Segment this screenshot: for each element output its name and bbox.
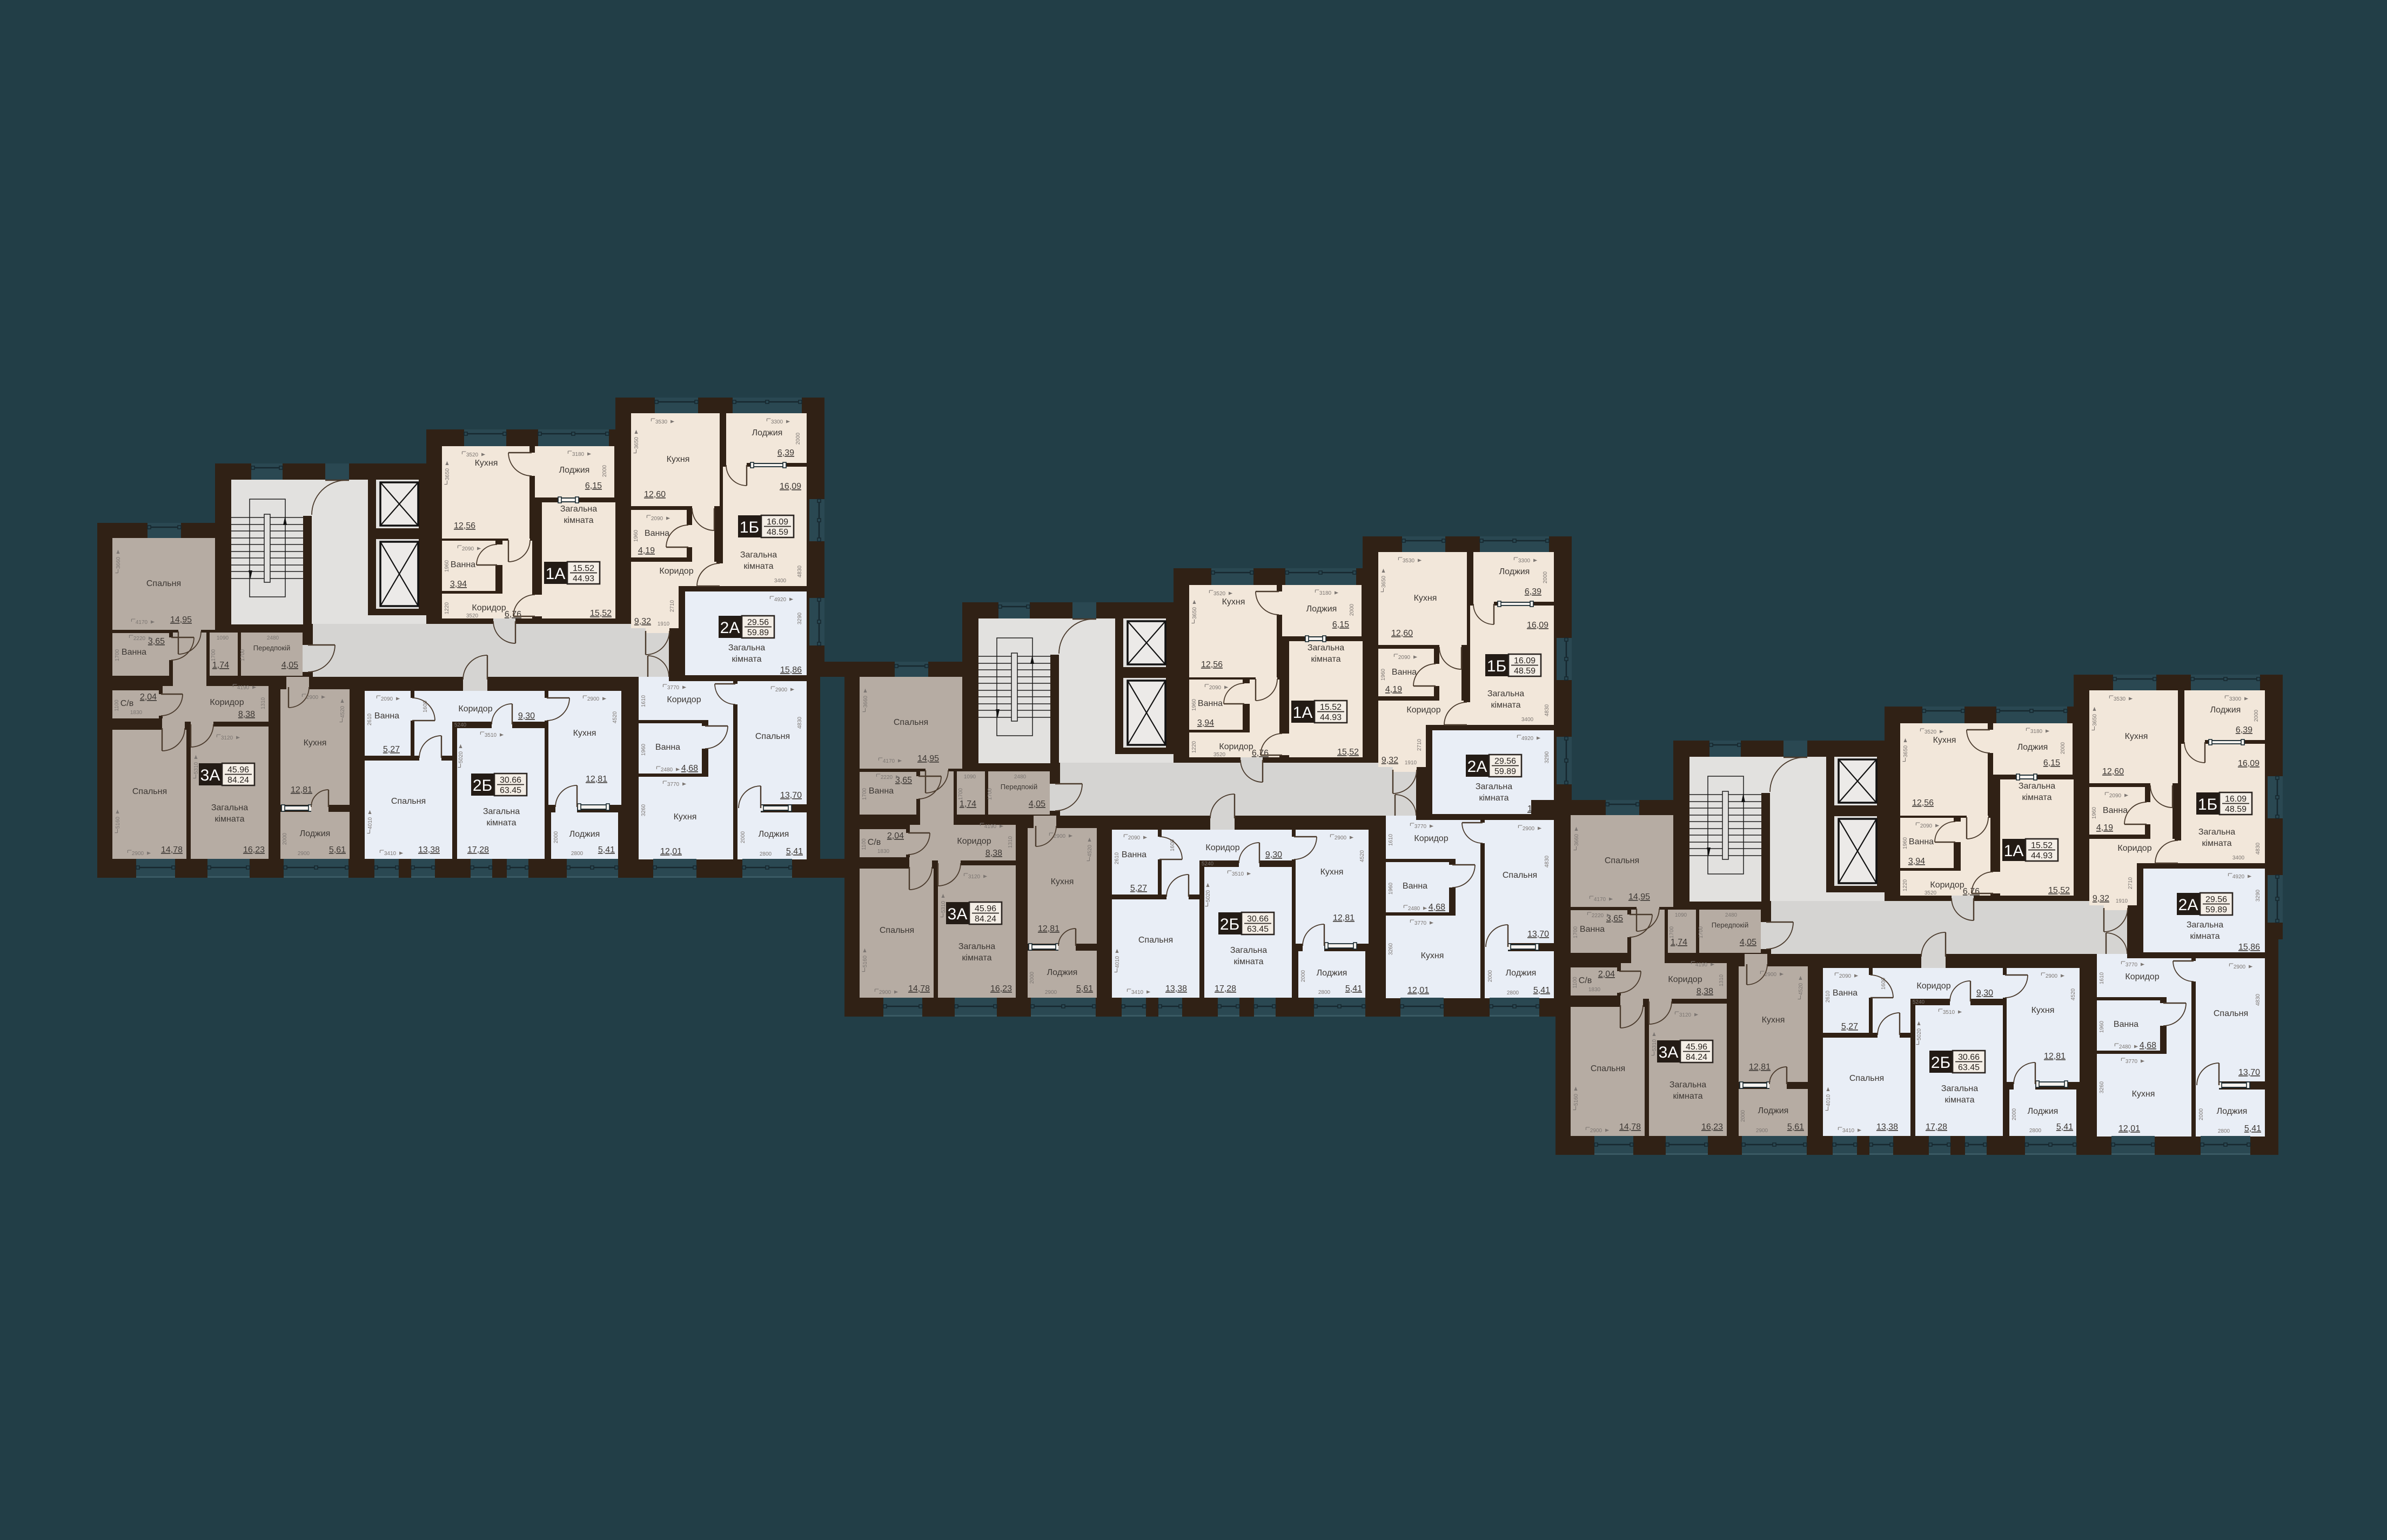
svg-text:Ванна: Ванна (2114, 1020, 2138, 1029)
svg-text:3А: 3А (948, 905, 968, 923)
svg-text:кімната: кімната (487, 818, 517, 828)
svg-text:2900: 2900 (1054, 833, 1066, 839)
svg-text:Кухня: Кухня (674, 812, 697, 822)
svg-text:1960: 1960 (633, 529, 639, 542)
svg-text:3,94: 3,94 (1908, 857, 1925, 866)
svg-text:С/в: С/в (1579, 976, 1592, 985)
svg-text:3180: 3180 (572, 452, 585, 458)
svg-text:3520: 3520 (466, 613, 479, 619)
svg-text:4830: 4830 (797, 716, 803, 729)
svg-text:Ванна: Ванна (1392, 668, 1417, 677)
svg-text:Лоджия: Лоджия (2210, 705, 2241, 715)
svg-text:14,95: 14,95 (1628, 892, 1650, 902)
svg-text:16.09: 16.09 (2225, 795, 2247, 804)
svg-text:1700: 1700 (987, 788, 993, 800)
svg-text:Ванна: Ванна (655, 743, 680, 752)
svg-text:3530: 3530 (655, 419, 668, 425)
svg-text:1830: 1830 (877, 849, 890, 855)
svg-text:2610: 2610 (1825, 990, 1831, 1003)
svg-text:Коридор: Коридор (1406, 705, 1440, 715)
svg-text:Спальня: Спальня (1138, 936, 1173, 945)
svg-text:Спальня: Спальня (132, 787, 167, 796)
svg-text:1310: 1310 (260, 697, 266, 709)
svg-text:3520: 3520 (1213, 591, 1226, 597)
svg-text:Загальна: Загальна (2187, 920, 2223, 930)
svg-text:3180: 3180 (1319, 590, 1332, 596)
svg-text:12,81: 12,81 (1038, 924, 1060, 933)
svg-text:4830: 4830 (1544, 855, 1550, 867)
svg-text:2800: 2800 (1507, 990, 1519, 996)
svg-text:4010: 4010 (1826, 1094, 1832, 1106)
svg-text:Спальня: Спальня (1849, 1074, 1884, 1083)
svg-text:Кухня: Кухня (1421, 951, 1444, 960)
svg-text:16,09: 16,09 (780, 482, 801, 491)
svg-text:2,04: 2,04 (887, 831, 904, 840)
svg-text:29.56: 29.56 (1494, 757, 1516, 766)
svg-text:48.59: 48.59 (767, 528, 788, 537)
svg-text:4170: 4170 (1594, 897, 1606, 903)
svg-text:4,05: 4,05 (1740, 938, 1756, 947)
svg-text:13,70: 13,70 (1527, 930, 1549, 939)
svg-text:3770: 3770 (1414, 920, 1427, 926)
svg-text:кімната: кімната (1234, 957, 1264, 966)
svg-text:6,15: 6,15 (2043, 758, 2060, 768)
svg-text:16,09: 16,09 (1527, 621, 1548, 630)
svg-text:Кухня: Кухня (1222, 597, 1245, 607)
svg-text:84.24: 84.24 (975, 914, 996, 924)
svg-text:1700: 1700 (240, 649, 246, 661)
svg-text:1А: 1А (2004, 842, 2024, 860)
svg-text:1610: 1610 (641, 695, 647, 707)
svg-text:4,05: 4,05 (1029, 799, 1045, 809)
svg-text:1700: 1700 (862, 788, 868, 800)
svg-text:Лоджия: Лоджия (569, 830, 600, 839)
svg-text:Ванна: Ванна (1580, 925, 1605, 934)
svg-text:3А: 3А (1659, 1044, 1679, 1061)
svg-text:2900: 2900 (1590, 1128, 1602, 1134)
svg-text:4,68: 4,68 (2140, 1041, 2156, 1050)
svg-text:2Б: 2Б (473, 777, 492, 795)
svg-text:Кухня: Кухня (1051, 877, 1074, 886)
svg-text:кімната: кімната (2202, 839, 2232, 848)
svg-text:2,04: 2,04 (140, 692, 157, 702)
svg-text:15.52: 15.52 (2031, 841, 2053, 850)
svg-text:3120: 3120 (1679, 1012, 1692, 1018)
svg-text:2900: 2900 (1045, 990, 1057, 996)
svg-text:4920: 4920 (774, 597, 787, 603)
svg-text:2090: 2090 (1398, 655, 1411, 661)
svg-text:2900: 2900 (298, 851, 310, 857)
svg-text:2900: 2900 (1523, 826, 1535, 832)
svg-text:3650: 3650 (1381, 575, 1387, 588)
svg-text:Коридор: Коридор (1930, 880, 1964, 890)
svg-text:кімната: кімната (215, 815, 245, 824)
svg-text:1610: 1610 (2099, 972, 2105, 984)
svg-text:12,01: 12,01 (1407, 986, 1429, 995)
svg-text:2480: 2480 (1408, 906, 1420, 912)
svg-text:14,95: 14,95 (917, 754, 939, 763)
svg-text:Коридор: Коридор (472, 603, 506, 613)
svg-text:2000: 2000 (2060, 742, 2066, 754)
svg-text:2220: 2220 (881, 775, 893, 781)
svg-text:Кухня: Кухня (1762, 1016, 1785, 1025)
svg-text:12,81: 12,81 (2044, 1052, 2066, 1061)
svg-text:2480: 2480 (2119, 1044, 2131, 1050)
svg-text:3260: 3260 (641, 804, 647, 816)
svg-text:Загальна: Загальна (483, 807, 520, 816)
svg-text:кімната: кімната (962, 953, 992, 963)
svg-text:1610: 1610 (1388, 833, 1394, 846)
svg-text:84.24: 84.24 (227, 776, 249, 785)
svg-text:9,32: 9,32 (1382, 756, 1398, 765)
svg-text:5240: 5240 (1202, 861, 1214, 867)
svg-text:5020: 5020 (1205, 890, 1211, 902)
svg-text:Ванна: Ванна (1833, 988, 1858, 998)
svg-text:5,41: 5,41 (2244, 1124, 2261, 1133)
svg-text:84.24: 84.24 (1686, 1053, 1707, 1062)
svg-text:48.59: 48.59 (1514, 667, 1536, 676)
svg-text:2000: 2000 (1487, 970, 1493, 982)
svg-text:Спальня: Спальня (894, 718, 928, 727)
svg-text:2000: 2000 (795, 432, 801, 445)
svg-text:14,78: 14,78 (1619, 1122, 1641, 1132)
svg-text:Лоджия: Лоджия (1506, 969, 1537, 978)
svg-text:2А: 2А (2178, 896, 2198, 914)
svg-text:1100: 1100 (114, 700, 120, 711)
svg-text:2000: 2000 (1543, 571, 1548, 583)
svg-text:3290: 3290 (1544, 751, 1550, 763)
svg-text:2000: 2000 (2254, 709, 2259, 722)
svg-text:2480: 2480 (1725, 912, 1738, 918)
svg-text:3650: 3650 (1903, 745, 1909, 757)
svg-text:Коридор: Коридор (957, 837, 991, 846)
svg-text:2Б: 2Б (1220, 916, 1239, 933)
svg-text:2900: 2900 (2046, 973, 2058, 979)
svg-text:Лоджия: Лоджия (2028, 1107, 2059, 1116)
svg-text:59.89: 59.89 (1494, 767, 1516, 776)
svg-text:5020: 5020 (458, 751, 464, 763)
svg-text:2А: 2А (720, 619, 740, 637)
svg-text:Кухня: Кухня (475, 459, 498, 468)
svg-text:Кухня: Кухня (667, 455, 690, 464)
svg-text:45.96: 45.96 (1686, 1043, 1707, 1052)
svg-text:1Б: 1Б (1487, 657, 1506, 675)
svg-text:3520: 3520 (1925, 890, 1937, 896)
svg-text:Загальна: Загальна (2019, 782, 2055, 791)
svg-text:Лоджия: Лоджия (759, 830, 789, 839)
svg-text:2,04: 2,04 (1598, 970, 1615, 979)
svg-text:2900: 2900 (879, 990, 891, 996)
svg-text:16,23: 16,23 (990, 984, 1012, 993)
svg-text:Загальна: Загальна (1308, 643, 1344, 653)
svg-text:Кухня: Кухня (304, 738, 327, 748)
svg-text:5310: 5310 (193, 762, 199, 774)
svg-text:44.93: 44.93 (1320, 713, 1342, 722)
svg-text:5,61: 5,61 (329, 845, 346, 855)
svg-text:4,19: 4,19 (1385, 685, 1402, 694)
svg-text:2090: 2090 (2109, 793, 2122, 799)
svg-text:3410: 3410 (1842, 1128, 1855, 1134)
svg-text:4830: 4830 (2255, 993, 2261, 1006)
svg-text:13,38: 13,38 (1165, 984, 1187, 993)
svg-text:13,38: 13,38 (1876, 1122, 1898, 1132)
svg-text:59.89: 59.89 (747, 628, 769, 637)
svg-text:3120: 3120 (968, 874, 981, 880)
svg-text:3770: 3770 (667, 685, 680, 691)
svg-text:3290: 3290 (2255, 889, 2261, 902)
svg-text:4190: 4190 (1695, 962, 1708, 968)
svg-text:Ванна: Ванна (1909, 837, 1934, 846)
svg-text:Загальна: Загальна (1487, 689, 1524, 698)
svg-text:кімната: кімната (1491, 701, 1521, 710)
svg-text:2800: 2800 (2029, 1128, 2042, 1134)
svg-text:1090: 1090 (1675, 912, 1687, 918)
svg-text:2900: 2900 (132, 851, 144, 857)
svg-text:6,15: 6,15 (1332, 620, 1349, 629)
svg-text:Коридор: Коридор (1219, 742, 1253, 751)
svg-text:Спальня: Спальня (146, 579, 181, 588)
svg-text:кімната: кімната (1479, 793, 1509, 803)
svg-text:2480: 2480 (661, 767, 673, 773)
svg-text:Лоджия: Лоджия (1758, 1106, 1789, 1115)
svg-text:Спальня: Спальня (1591, 1064, 1625, 1073)
svg-text:2900: 2900 (1335, 835, 1347, 841)
svg-text:3520: 3520 (1925, 729, 1937, 735)
svg-text:13,70: 13,70 (2238, 1068, 2260, 1077)
svg-text:2090: 2090 (1128, 835, 1141, 841)
svg-text:12,56: 12,56 (454, 521, 475, 530)
svg-text:3660: 3660 (863, 695, 869, 708)
svg-text:3650: 3650 (445, 468, 451, 480)
svg-text:1220: 1220 (444, 602, 450, 614)
svg-text:12,81: 12,81 (1749, 1062, 1771, 1072)
svg-text:1910: 1910 (658, 621, 670, 627)
svg-text:12,60: 12,60 (2102, 767, 2124, 776)
svg-text:1310: 1310 (1719, 974, 1725, 986)
svg-text:5,41: 5,41 (2056, 1122, 2073, 1132)
svg-text:1960: 1960 (1902, 837, 1908, 849)
svg-text:2000: 2000 (1740, 1109, 1746, 1122)
svg-text:8,38: 8,38 (985, 849, 1002, 858)
svg-text:3300: 3300 (2229, 696, 2242, 702)
svg-text:Лоджия: Лоджия (1047, 968, 1078, 977)
svg-text:4,19: 4,19 (638, 546, 655, 555)
svg-text:30.66: 30.66 (1958, 1053, 1980, 1062)
svg-text:15,52: 15,52 (2048, 886, 2070, 895)
svg-text:С/в: С/в (868, 838, 881, 847)
svg-text:45.96: 45.96 (975, 904, 996, 913)
svg-text:1220: 1220 (1191, 741, 1197, 753)
svg-text:9,32: 9,32 (2093, 894, 2109, 903)
svg-text:Коридор: Коридор (210, 698, 244, 707)
svg-text:16.09: 16.09 (1514, 656, 1536, 665)
svg-text:5310: 5310 (941, 900, 947, 913)
svg-text:Загальна: Загальна (1941, 1084, 1978, 1093)
svg-text:3510: 3510 (1943, 1010, 1955, 1016)
svg-text:2710: 2710 (669, 600, 675, 612)
svg-text:15,86: 15,86 (2238, 943, 2260, 952)
svg-text:кімната: кімната (744, 562, 774, 571)
svg-text:5,27: 5,27 (1841, 1022, 1858, 1031)
svg-text:2000: 2000 (1349, 603, 1355, 616)
svg-text:8,38: 8,38 (238, 710, 255, 719)
svg-text:Ванна: Ванна (869, 786, 894, 796)
svg-text:1910: 1910 (1405, 760, 1417, 766)
svg-text:17,28: 17,28 (1215, 984, 1236, 993)
svg-text:Загальна: Загальна (1669, 1080, 1706, 1090)
svg-text:9,30: 9,30 (518, 711, 535, 721)
svg-text:кімната: кімната (2190, 932, 2220, 941)
svg-text:14,95: 14,95 (170, 615, 192, 624)
svg-text:4010: 4010 (367, 817, 373, 829)
svg-text:2090: 2090 (381, 696, 393, 702)
svg-text:Лоджия: Лоджия (1499, 567, 1530, 576)
svg-text:Кухня: Кухня (1933, 736, 1956, 745)
svg-text:Спальня: Спальня (1503, 871, 1537, 880)
svg-text:2000: 2000 (2011, 1108, 2017, 1120)
svg-text:Ванна: Ванна (451, 560, 475, 569)
svg-text:2800: 2800 (2218, 1128, 2230, 1134)
svg-text:4,19: 4,19 (2096, 823, 2113, 832)
svg-text:4520: 4520 (612, 711, 618, 723)
svg-text:Загальна: Загальна (1476, 782, 1512, 791)
svg-text:Коридор: Коридор (1205, 843, 1239, 852)
svg-text:Лоджия: Лоджия (300, 829, 331, 838)
svg-text:9,30: 9,30 (1265, 850, 1282, 859)
svg-text:1А: 1А (1293, 704, 1313, 722)
svg-text:5,27: 5,27 (383, 745, 400, 754)
svg-text:Ванна: Ванна (1122, 850, 1146, 859)
svg-text:2610: 2610 (367, 713, 373, 725)
svg-text:С/в: С/в (120, 699, 134, 708)
svg-text:1,74: 1,74 (960, 799, 976, 809)
svg-text:Спальня: Спальня (2214, 1009, 2248, 1018)
svg-text:29.56: 29.56 (747, 618, 769, 627)
svg-text:3290: 3290 (797, 612, 803, 624)
svg-text:Коридор: Коридор (2117, 844, 2151, 853)
svg-text:Ванна: Ванна (1403, 882, 1427, 891)
svg-text:15,52: 15,52 (1337, 748, 1359, 757)
svg-text:Спальня: Спальня (1605, 856, 1639, 865)
svg-text:5310: 5310 (1652, 1039, 1658, 1051)
svg-text:3510: 3510 (1232, 871, 1244, 877)
svg-text:Загальна: Загальна (740, 550, 777, 560)
svg-text:13,70: 13,70 (780, 791, 802, 800)
svg-text:Ванна: Ванна (374, 711, 399, 721)
svg-text:4190: 4190 (237, 685, 250, 691)
svg-text:1830: 1830 (130, 710, 143, 716)
svg-text:4920: 4920 (2232, 874, 2245, 880)
svg-text:5160: 5160 (115, 816, 121, 829)
svg-text:4520: 4520 (340, 705, 346, 718)
svg-text:8,38: 8,38 (1697, 987, 1713, 996)
svg-text:5,41: 5,41 (1533, 986, 1550, 995)
svg-text:Коридор: Коридор (1916, 981, 1950, 991)
svg-text:3530: 3530 (1403, 558, 1415, 564)
svg-text:1Б: 1Б (740, 519, 759, 536)
svg-text:Загальна: Загальна (1230, 946, 1267, 955)
svg-text:5240: 5240 (454, 722, 467, 728)
svg-text:1960: 1960 (641, 743, 647, 756)
svg-text:5,41: 5,41 (598, 845, 615, 855)
svg-text:29.56: 29.56 (2205, 895, 2227, 904)
svg-text:4830: 4830 (2255, 842, 2261, 855)
svg-text:3260: 3260 (1388, 943, 1394, 955)
svg-text:5,41: 5,41 (786, 847, 803, 856)
svg-text:Спальня: Спальня (880, 926, 914, 935)
svg-text:Загальна: Загальна (2198, 828, 2235, 837)
svg-text:2220: 2220 (1592, 913, 1604, 919)
svg-text:2000: 2000 (282, 832, 288, 845)
svg-text:Коридор: Коридор (659, 567, 693, 576)
svg-text:4830: 4830 (1544, 704, 1550, 716)
svg-text:1960: 1960 (2091, 806, 2097, 819)
svg-text:1700: 1700 (211, 649, 217, 661)
svg-text:2Б: 2Б (1931, 1054, 1950, 1072)
svg-text:Кухня: Кухня (1414, 594, 1437, 603)
svg-text:1220: 1220 (1902, 879, 1908, 891)
svg-text:4520: 4520 (2070, 988, 2076, 1000)
svg-text:45.96: 45.96 (227, 765, 249, 775)
svg-text:Передпокій: Передпокій (1001, 783, 1037, 791)
svg-text:44.93: 44.93 (573, 574, 594, 583)
svg-text:Загальна: Загальна (728, 643, 765, 653)
svg-text:17,28: 17,28 (467, 845, 489, 855)
svg-text:2000: 2000 (553, 831, 559, 843)
svg-text:15,52: 15,52 (590, 609, 612, 618)
svg-text:12,81: 12,81 (586, 775, 607, 784)
svg-text:12,60: 12,60 (1391, 629, 1413, 638)
svg-text:30.66: 30.66 (1247, 914, 1269, 924)
svg-text:3660: 3660 (116, 556, 122, 569)
svg-text:2000: 2000 (2198, 1108, 2204, 1120)
svg-text:Кухня: Кухня (1320, 867, 1344, 877)
svg-text:Лоджия: Лоджия (2217, 1107, 2248, 1116)
svg-text:2900: 2900 (587, 696, 600, 702)
svg-text:2610: 2610 (1114, 852, 1120, 864)
svg-text:4,05: 4,05 (281, 661, 298, 670)
svg-text:1А: 1А (546, 565, 566, 583)
svg-text:3180: 3180 (2030, 729, 2043, 735)
svg-text:Кухня: Кухня (573, 729, 596, 738)
svg-text:4,68: 4,68 (681, 764, 698, 773)
svg-text:12,56: 12,56 (1912, 798, 1934, 808)
svg-text:Коридор: Коридор (458, 704, 492, 714)
svg-text:4830: 4830 (797, 565, 803, 577)
svg-text:кімната: кімната (2022, 793, 2052, 802)
svg-text:12,01: 12,01 (2118, 1124, 2140, 1133)
svg-text:2090: 2090 (1209, 685, 1222, 691)
svg-text:2480: 2480 (267, 635, 279, 641)
svg-text:2800: 2800 (1318, 990, 1331, 996)
svg-text:3770: 3770 (667, 782, 680, 788)
svg-text:2090: 2090 (462, 546, 474, 552)
svg-text:3А: 3А (200, 766, 220, 784)
svg-text:44.93: 44.93 (2031, 851, 2053, 860)
svg-text:13,38: 13,38 (418, 845, 440, 855)
svg-text:12,81: 12,81 (291, 785, 312, 795)
svg-text:1960: 1960 (2099, 1020, 2105, 1033)
svg-text:4520: 4520 (1087, 844, 1093, 857)
svg-text:4520: 4520 (1359, 850, 1365, 862)
svg-text:2000: 2000 (1300, 970, 1306, 982)
svg-text:Лоджия: Лоджия (1306, 604, 1337, 614)
svg-text:9,32: 9,32 (634, 617, 651, 626)
svg-text:Кухня: Кухня (2132, 1090, 2155, 1099)
svg-text:16.09: 16.09 (767, 517, 788, 527)
svg-text:5020: 5020 (1916, 1028, 1922, 1040)
svg-text:2900: 2900 (2234, 964, 2246, 970)
